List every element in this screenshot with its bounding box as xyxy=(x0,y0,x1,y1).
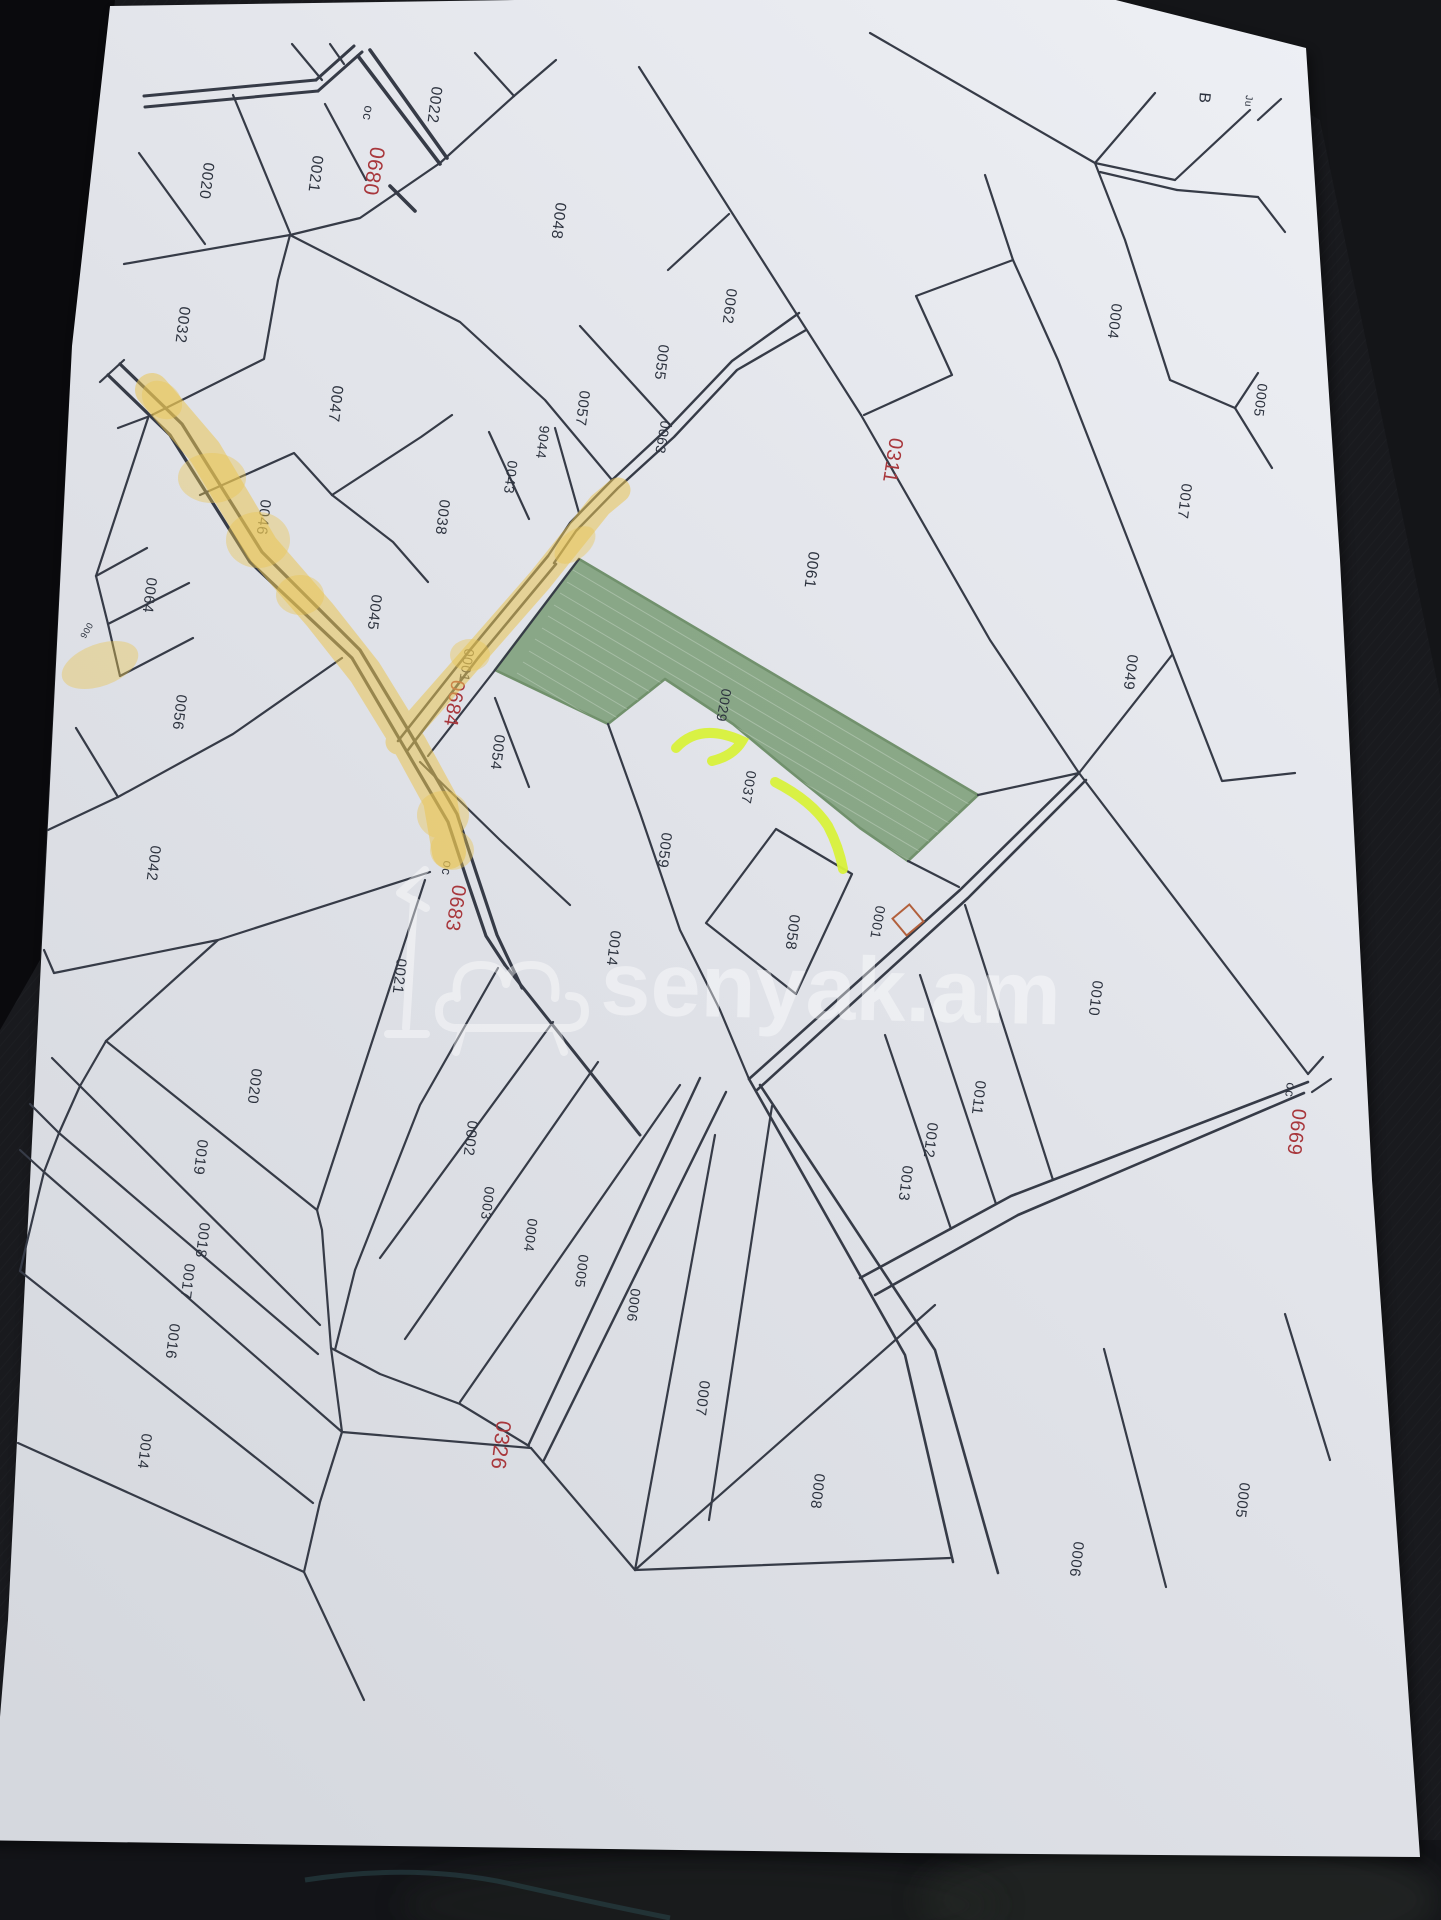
svg-text:Ju: Ju xyxy=(1242,95,1254,108)
svg-text:senyak.am: senyak.am xyxy=(600,934,1062,1044)
svg-text:oc: oc xyxy=(360,105,377,122)
svg-text:B: B xyxy=(1195,92,1213,105)
svg-text:oc: oc xyxy=(1282,1082,1299,1099)
